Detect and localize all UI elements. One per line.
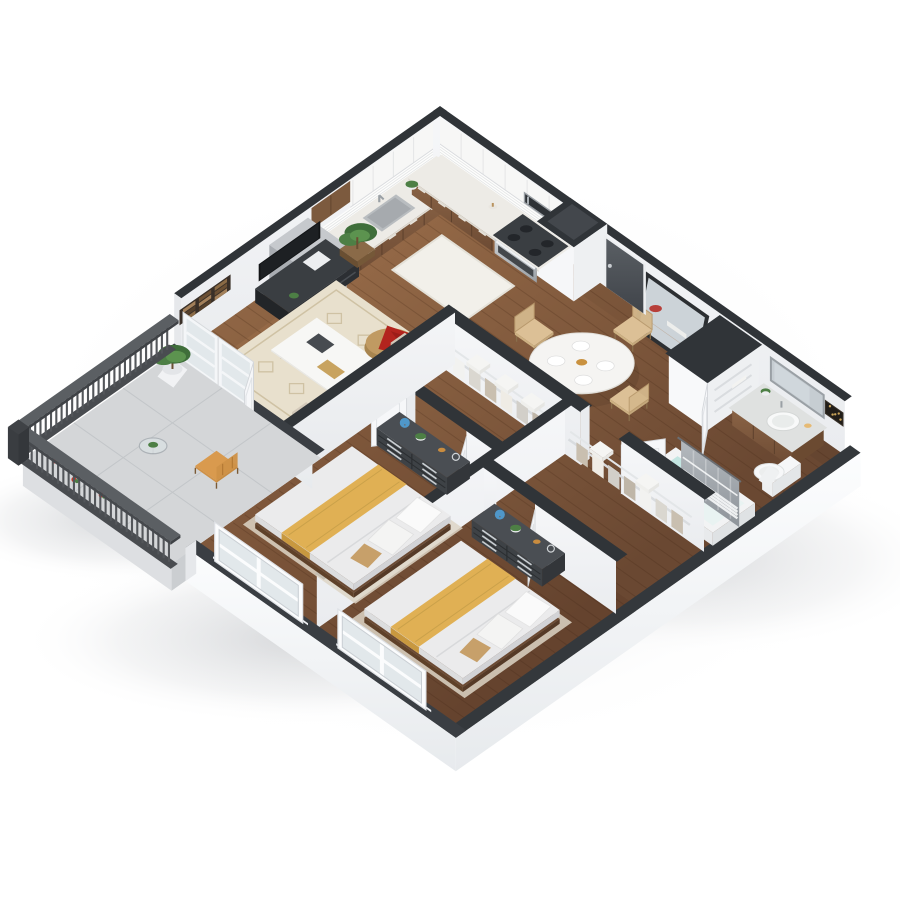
floorplan-3d-scene <box>0 0 900 900</box>
apartment-floorplan-render <box>0 0 900 900</box>
